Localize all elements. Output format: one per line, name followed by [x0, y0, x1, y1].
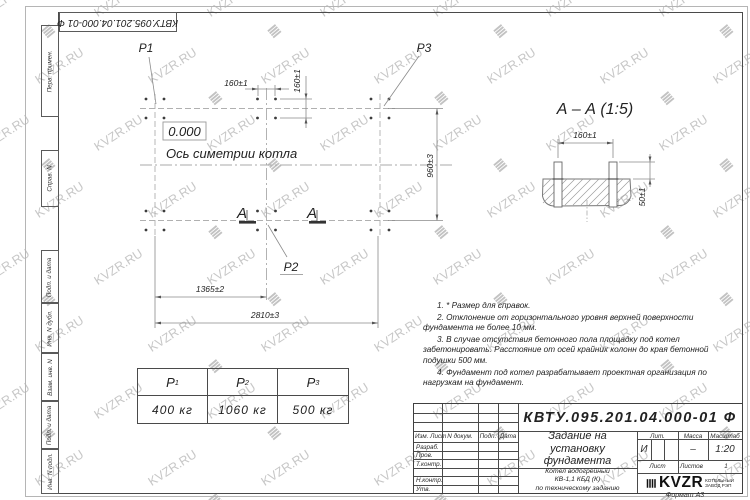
dim-section-height: 50±1 — [637, 187, 647, 206]
anchor-bolt-dots — [145, 98, 391, 232]
anchor-bolt-dot — [163, 117, 166, 120]
brand-name: KVZR — [659, 474, 703, 492]
brand-subtitle: КОТЕЛЬНЫЙЗАВОД РЭП — [705, 478, 734, 488]
dim-pitch-y: 160±1 — [292, 69, 302, 93]
anchor-bolt-dot — [256, 98, 259, 101]
anchor-bolt-dot — [370, 98, 373, 101]
note-2: 2. Отклонение от горизонтального уровня … — [423, 313, 730, 334]
anchor-bolt-dot — [274, 117, 277, 120]
load-point-p2-label: P2 — [284, 260, 299, 274]
kvzr-logo-icon: ≣ — [645, 478, 658, 489]
scale-value: 1:20 — [708, 444, 742, 455]
sheets-label: Листов — [680, 463, 703, 470]
anchor-bolt-dot — [145, 210, 148, 213]
anchor-bolt-dot — [388, 210, 391, 213]
section-view-geometry — [543, 162, 632, 222]
anchor-bolt-dot — [256, 229, 259, 232]
anchor-bolt-dot — [256, 117, 259, 120]
anchor-bolt-dot — [370, 117, 373, 120]
rev-header-podp: Подп. — [478, 433, 498, 440]
anchor-bolt-dot — [274, 98, 277, 101]
anchor-bolt-dot — [163, 229, 166, 232]
note-3: 3. В случае отсутствия бетонного пола пл… — [423, 335, 730, 367]
anchor-bolt-dot — [370, 229, 373, 232]
section-view-title: А – А (1:5) — [556, 101, 633, 118]
mass-header: Масса — [678, 433, 708, 440]
role-razrab: Разраб. — [416, 444, 439, 451]
load-table: P1 P2 P3 400 кг 1060 кг 500 кг — [137, 368, 349, 424]
load-table-value-p3: 500 кг — [278, 396, 348, 423]
mass-value: – — [678, 444, 708, 455]
rev-header-data: Дата — [498, 433, 518, 440]
note-1: 1. * Размер для справок. — [423, 301, 730, 312]
load-table-value-p1: 400 кг — [138, 396, 208, 423]
anchor-bolt-dot — [163, 98, 166, 101]
load-point-p3-label: P3 — [417, 41, 432, 55]
technical-notes: 1. * Размер для справок. 2. Отклонение о… — [423, 301, 730, 390]
load-table-header-p2: P2 — [208, 369, 278, 396]
load-table-header-p1: P1 — [138, 369, 208, 396]
elevation-value: 0.000 — [168, 124, 201, 139]
dim-section-pitch: 160±1 — [573, 130, 597, 140]
anchor-bolt-dot — [256, 210, 259, 213]
note-4: 4. Фундамент под котел разрабатывает про… — [423, 368, 730, 389]
rev-header-izm-list: Изм. Лист — [415, 433, 442, 440]
lit-header: Лит. — [637, 433, 678, 440]
anchor-bolt-dot — [388, 229, 391, 232]
anchor-bolt-dot — [274, 210, 277, 213]
anchor-bolt-dot — [145, 117, 148, 120]
dim-width-960: 960±3 — [425, 154, 435, 178]
section-letter-a2: А — [306, 205, 317, 222]
drawing-title: Задание наустановкуфундамента — [518, 430, 637, 468]
load-table-value-p2: 1060 кг — [208, 396, 278, 423]
sheet-label: Лист — [637, 463, 678, 470]
lit-value: И — [637, 444, 651, 455]
role-tkontr: Т.контр. — [416, 461, 441, 468]
anchor-bolt-dot — [370, 210, 373, 213]
company-logo: ≣ KVZR КОТЕЛЬНЫЙЗАВОД РЭП — [638, 473, 742, 493]
drawing-sheet: KVZR.RU≣KVZR.RUKVZR.RU≣KVZR.RUKVZR.RU≣KV… — [0, 0, 750, 500]
section-dimension-arrows — [558, 142, 651, 185]
anchor-bolt-left — [554, 162, 562, 207]
sheets-value: 1 — [714, 463, 738, 470]
load-table-header-p3: P3 — [278, 369, 348, 396]
anchor-bolt-dot — [274, 229, 277, 232]
boiler-symmetry-axis-label: Ось симетрии котла — [166, 146, 297, 161]
format-label: Формат А3 — [620, 492, 750, 499]
role-prov: Пров. — [416, 452, 433, 459]
anchor-bolt-dot — [145, 98, 148, 101]
anchor-bolt-dot — [388, 117, 391, 120]
title-block: Изм. Лист N докум. Подп. Дата Разраб. Пр… — [413, 403, 743, 494]
anchor-bolt-dot — [145, 229, 148, 232]
role-utv: Утв. — [416, 486, 430, 493]
rev-header-doc: N докум. — [442, 433, 478, 440]
dim-offset-1365: 1365±2 — [196, 284, 225, 294]
drawing-subtitle: Котел водогрейныйКВ-1,1 КБД (К)по технич… — [518, 468, 637, 493]
dim-length-2810: 2810±3 — [250, 310, 280, 320]
doc-number: КВТУ.095.201.04.000-01 Ф — [518, 404, 742, 431]
anchor-bolt-dot — [163, 210, 166, 213]
dim-pitch-x: 160±1 — [224, 78, 248, 88]
role-nkontr: Н.контр. — [416, 477, 443, 484]
anchor-bolt-right — [609, 162, 617, 207]
load-point-p1-label: P1 — [139, 41, 154, 55]
scale-header: Масштаб — [708, 433, 742, 440]
section-letter-a1: А — [236, 205, 247, 222]
